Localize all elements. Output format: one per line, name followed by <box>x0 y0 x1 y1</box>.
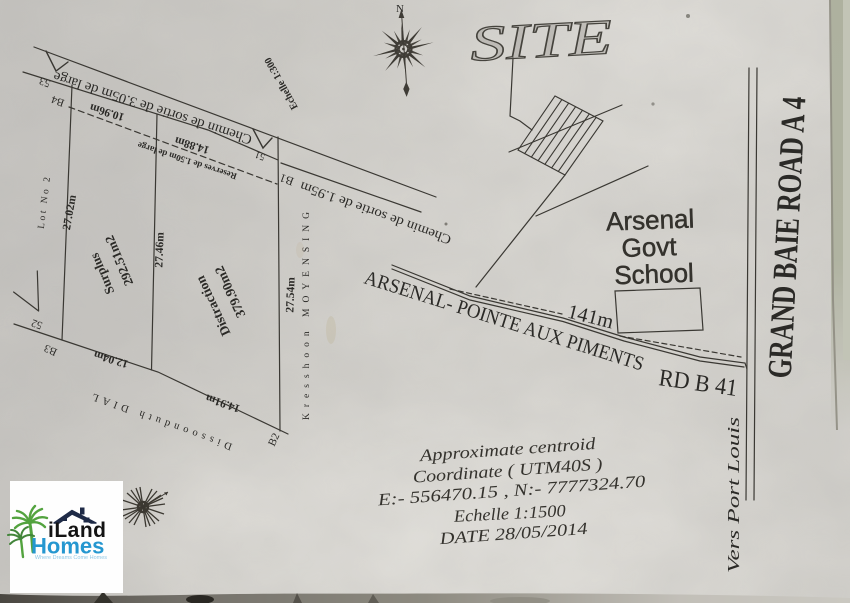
svg-text:SITE: SITE <box>469 8 614 71</box>
svg-text:N: N <box>396 3 404 15</box>
svg-text:Vers Port Louis: Vers Port Louis <box>724 416 743 573</box>
svg-text:Kresshoon MOYENSING: Kresshoon MOYENSING <box>302 206 312 420</box>
svg-text:Where Dreams Come Homes: Where Dreams Come Homes <box>35 555 107 561</box>
svg-text:27.54m: 27.54m <box>284 277 297 313</box>
svg-text:School: School <box>614 258 694 291</box>
svg-text:27.46m: 27.46m <box>153 232 166 268</box>
